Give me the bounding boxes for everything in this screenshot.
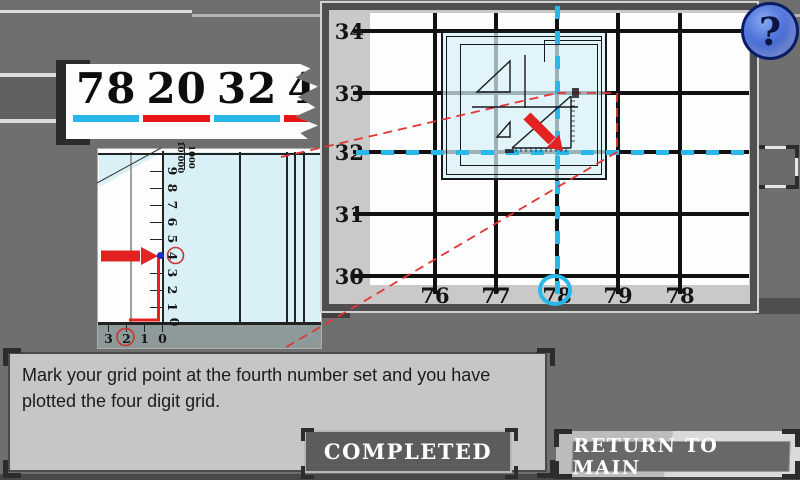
northing-label: 30 bbox=[326, 264, 364, 289]
corner-bracket bbox=[782, 461, 800, 479]
ruler-tick bbox=[150, 239, 162, 241]
digit-pair-northing-grid: 32 bbox=[214, 64, 280, 122]
return-panel: RETURN TO MAIN bbox=[556, 431, 800, 477]
ruler-label: 5 bbox=[166, 232, 180, 246]
help-question-icon: ? bbox=[759, 9, 781, 54]
corner-bracket bbox=[505, 428, 518, 441]
ruler-label: 2 bbox=[166, 283, 180, 297]
grid-number-banner: 78 20 32 40 bbox=[66, 64, 318, 139]
axis-label: 3 bbox=[101, 331, 117, 346]
ruler-tick bbox=[150, 222, 162, 224]
corner-bracket bbox=[786, 176, 799, 189]
ruler-tick bbox=[150, 307, 162, 309]
axis-label-circled: 2 bbox=[119, 331, 135, 346]
plotting-scale-overlay bbox=[441, 31, 607, 180]
corner-bracket bbox=[537, 460, 555, 478]
axis-label: 0 bbox=[155, 331, 171, 346]
scale-map-line bbox=[294, 152, 296, 345]
easting-label: 76 bbox=[413, 283, 457, 308]
highlight-dash-horizontal bbox=[356, 150, 749, 155]
coordinate-scale-view: 9 8 7 6 5 4 3 2 1 0 1000 10,000 3 2 1 0 bbox=[97, 148, 322, 349]
plotting-scale-border bbox=[460, 44, 598, 166]
ruler-tick bbox=[150, 188, 162, 190]
ruler-label: 8 bbox=[166, 181, 180, 195]
map-grid-panel: 34 33 32 31 30 76 77 78 79 78 bbox=[322, 3, 757, 311]
corner-bracket bbox=[505, 466, 518, 479]
bg-line-top bbox=[0, 10, 192, 13]
axis-label: 1 bbox=[137, 331, 153, 346]
ruler-tick bbox=[150, 205, 162, 207]
scale-map-line bbox=[303, 152, 305, 345]
corner-bracket bbox=[554, 461, 572, 479]
easting-label: 79 bbox=[596, 283, 640, 308]
corner-bracket bbox=[554, 429, 572, 447]
corner-bracket bbox=[782, 429, 800, 447]
ruler-label: 1 bbox=[166, 300, 180, 314]
scale-easting-line bbox=[130, 152, 132, 324]
digit-pair-easting-meters: 20 bbox=[143, 64, 209, 122]
scale-ruler-line bbox=[162, 151, 164, 323]
corner-bracket bbox=[301, 428, 314, 441]
easting-label: 78 bbox=[658, 283, 702, 308]
bg-line-left-1 bbox=[0, 73, 62, 77]
return-to-main-button[interactable]: RETURN TO MAIN bbox=[571, 441, 790, 472]
scale-map-line bbox=[286, 152, 288, 345]
grid-line-h bbox=[353, 212, 749, 216]
completed-button-label: COMPLETED bbox=[324, 439, 492, 464]
ruler-label: 7 bbox=[166, 198, 180, 212]
ruler-label: 3 bbox=[166, 266, 180, 280]
easting-label: 77 bbox=[474, 283, 518, 308]
bg-band-left bbox=[0, 77, 62, 119]
ruler-label: 0 bbox=[168, 315, 182, 329]
northing-label: 34 bbox=[326, 19, 364, 44]
ruler-tick bbox=[150, 273, 162, 275]
corner-bracket bbox=[786, 145, 799, 158]
corner-bracket bbox=[3, 460, 21, 478]
ruler-label-circled: 4 bbox=[166, 249, 180, 263]
scale-top-line bbox=[98, 153, 321, 155]
bg-tab-2 bbox=[755, 298, 800, 314]
ruler-tick bbox=[150, 171, 162, 173]
northing-label: 31 bbox=[326, 202, 364, 227]
highlight-dash-vertical bbox=[555, 6, 560, 294]
ruler-tick bbox=[150, 256, 162, 258]
fraction-numerator: 1000 bbox=[185, 144, 196, 170]
plotting-scale-corner-line bbox=[544, 40, 601, 41]
ruler-tick bbox=[150, 290, 162, 292]
ruler-scale-fraction: 1000 10,000 bbox=[172, 140, 198, 174]
plotting-scale-corner-line bbox=[544, 40, 545, 62]
completed-button[interactable]: COMPLETED bbox=[306, 432, 510, 471]
scale-map-line bbox=[239, 152, 241, 345]
instruction-text: Mark your grid point at the fourth numbe… bbox=[10, 354, 545, 423]
corner-bracket bbox=[3, 348, 21, 366]
app-screen: 78 20 32 40 9 8 7 6 5 4 3 2 1 0 bbox=[0, 0, 800, 480]
digit-pair-easting-grid: 78 bbox=[73, 64, 139, 122]
target-box-decor bbox=[753, 146, 798, 188]
circled-easting-ring bbox=[538, 274, 572, 306]
ruler-label: 6 bbox=[166, 215, 180, 229]
northing-label: 33 bbox=[326, 81, 364, 106]
help-button[interactable]: ? bbox=[741, 2, 799, 60]
return-button-label: RETURN TO MAIN bbox=[572, 435, 790, 479]
corner-bracket bbox=[301, 466, 314, 479]
scale-cyan-area bbox=[164, 152, 320, 325]
bg-line-left-2 bbox=[0, 119, 62, 123]
fraction-denominator: 10,000 bbox=[175, 141, 185, 174]
corner-bracket bbox=[537, 348, 555, 366]
